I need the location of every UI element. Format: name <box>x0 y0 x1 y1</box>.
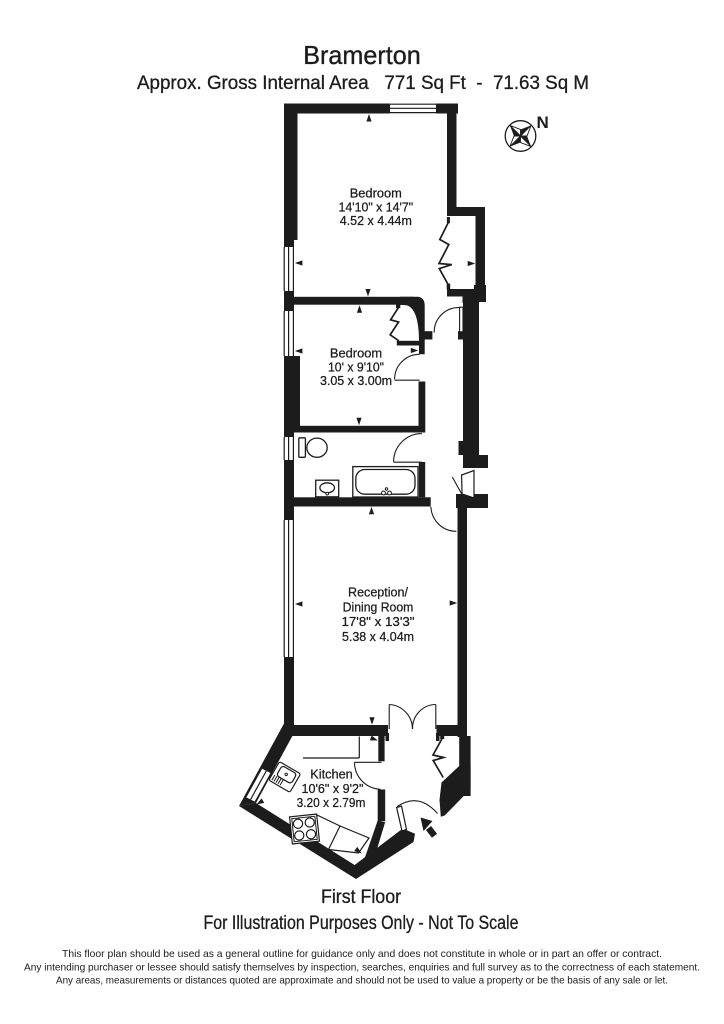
svg-text:14'10" x 14'7": 14'10" x 14'7" <box>339 199 414 214</box>
svg-text:For Illustration Purposes Only: For Illustration Purposes Only - Not To … <box>204 913 519 934</box>
svg-text:Bedroom: Bedroom <box>350 185 402 200</box>
svg-text:This floor plan should be used: This floor plan should be used as a gene… <box>62 949 662 960</box>
svg-text:10'6" x 9'2": 10'6" x 9'2" <box>302 781 364 796</box>
svg-text:10' x 9'10": 10' x 9'10" <box>328 359 384 374</box>
svg-text:First Floor: First Floor <box>321 886 401 908</box>
svg-text:Kitchen: Kitchen <box>310 767 353 782</box>
svg-text:3.05 x 3.00m: 3.05 x 3.00m <box>320 373 392 388</box>
svg-text:3.20 x 2.79m: 3.20 x 2.79m <box>297 795 366 810</box>
svg-text:Approx. Gross Internal Area: Approx. Gross Internal Area 771 Sq Ft - … <box>137 73 589 94</box>
svg-text:Dining Room: Dining Room <box>343 599 414 614</box>
svg-text:4.52 x 4.44m: 4.52 x 4.44m <box>340 213 412 228</box>
svg-text:5.38 x 4.04m: 5.38 x 4.04m <box>342 629 414 644</box>
svg-text:Bramerton: Bramerton <box>303 40 421 70</box>
svg-text:Bedroom: Bedroom <box>330 346 382 361</box>
svg-text:Reception/: Reception/ <box>348 585 408 600</box>
svg-text:Any intending purchaser or les: Any intending purchaser or lessee should… <box>24 962 700 973</box>
svg-text:Any areas, measurements or dis: Any areas, measurements or distances quo… <box>56 976 668 987</box>
svg-text:17'8" x 13'3": 17'8" x 13'3" <box>342 614 415 629</box>
svg-text:N: N <box>537 113 549 132</box>
